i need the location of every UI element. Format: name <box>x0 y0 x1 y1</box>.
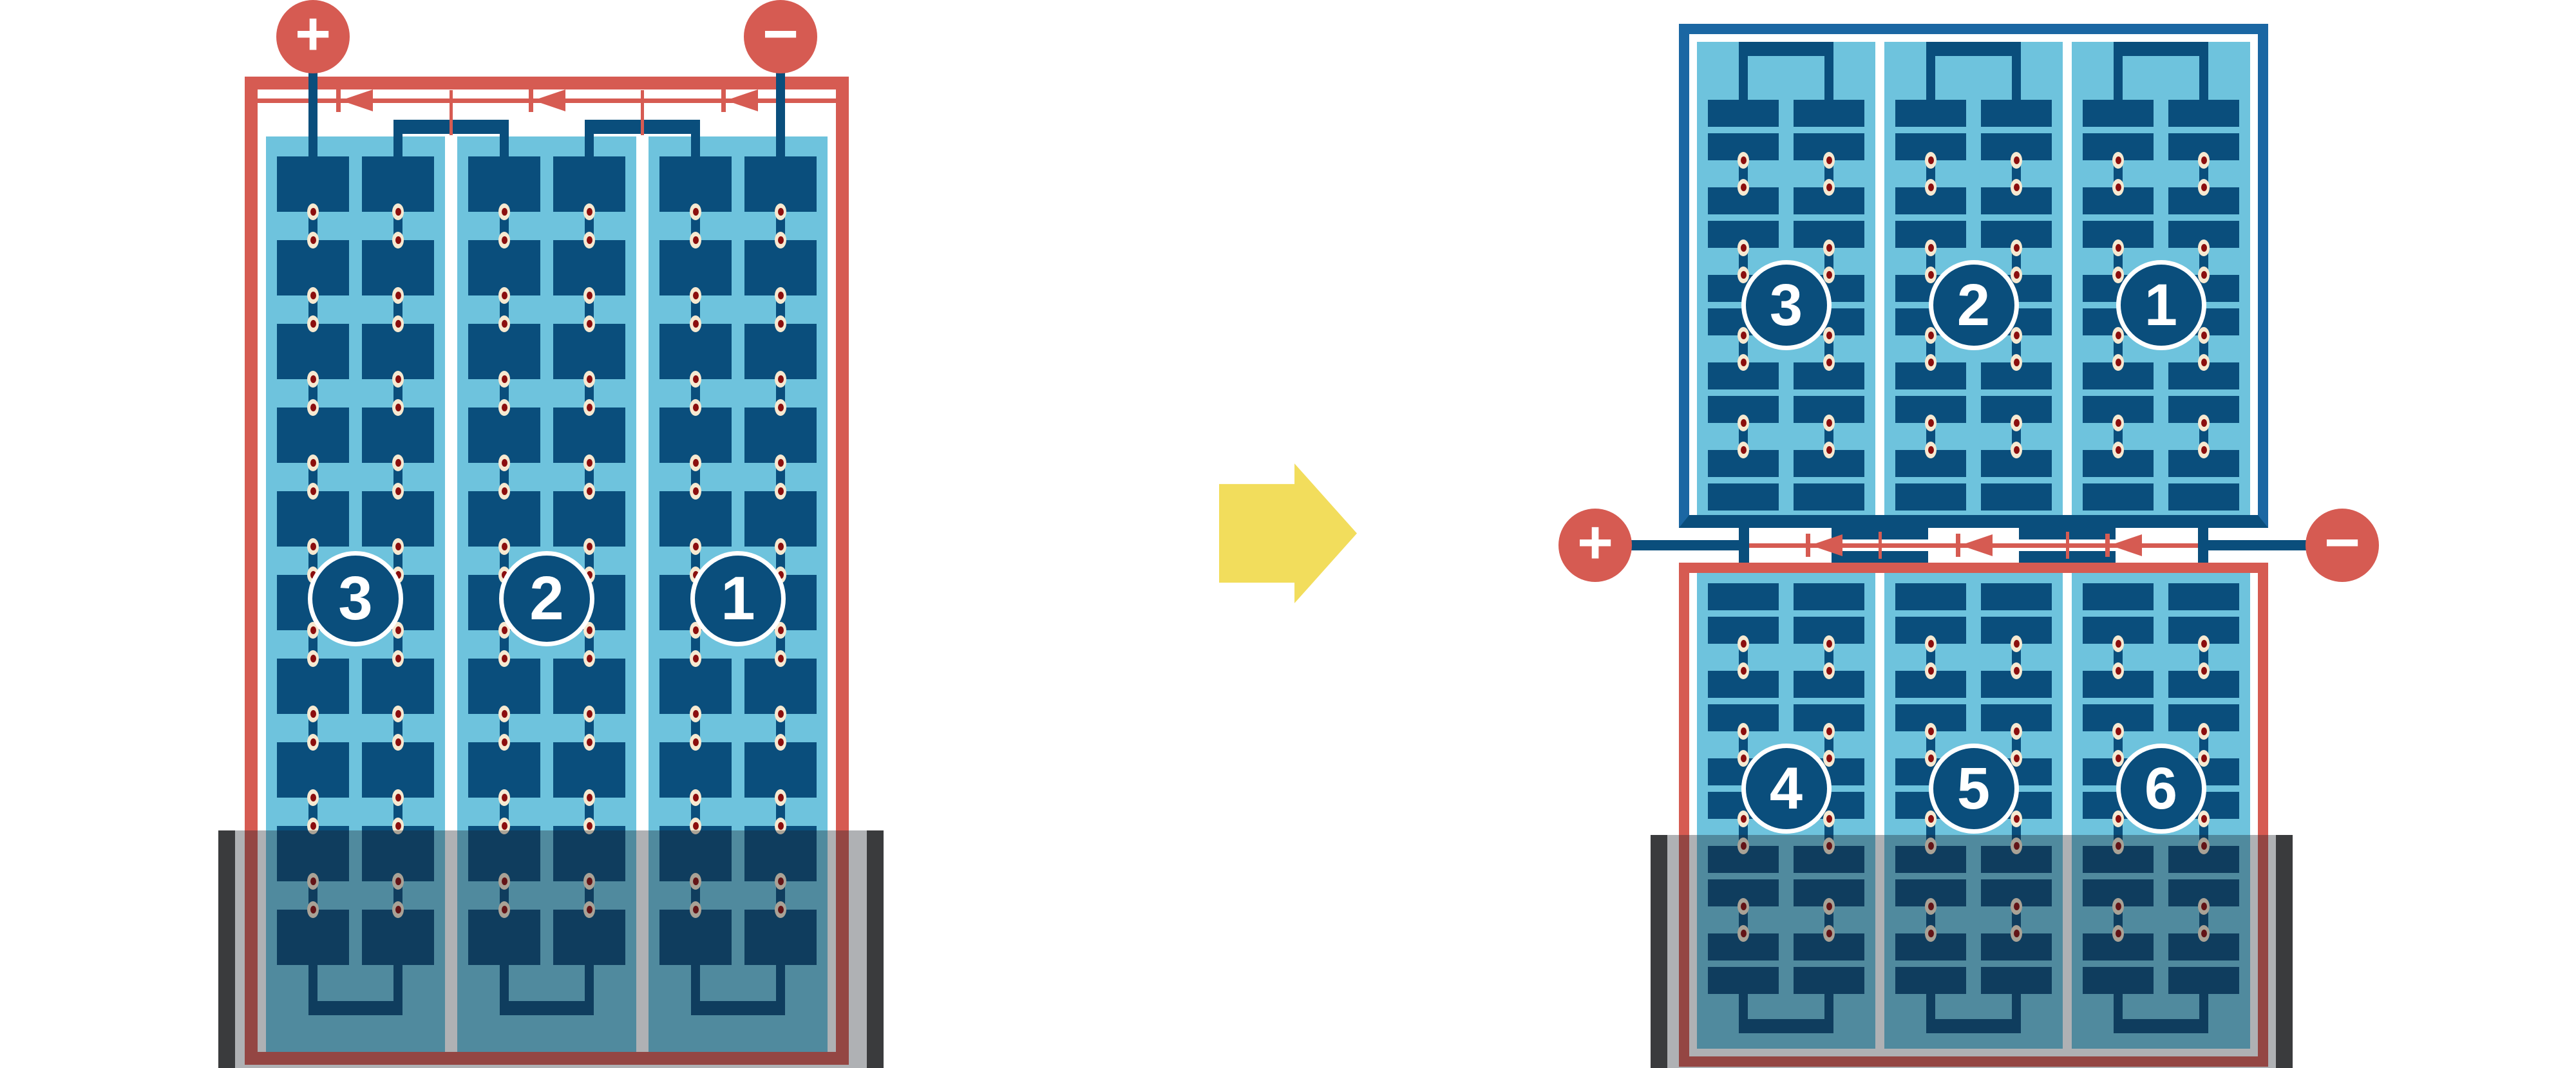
wire-tap-tick <box>1879 532 1882 559</box>
diode-bar-icon <box>2105 534 2110 557</box>
battery-module-diagram: 321321456 + − + − <box>0 0 2576 1068</box>
terminal-stem <box>2208 540 2307 550</box>
right-negative-terminal: − <box>2306 509 2379 582</box>
left-positive-terminal: + <box>276 0 350 73</box>
wire-tap-tick <box>2066 532 2069 559</box>
diode-arrow-icon <box>1960 534 1993 556</box>
diode-bar-icon <box>1806 534 1810 557</box>
minus-icon: − <box>2324 512 2360 574</box>
overlay-end-cap <box>867 830 884 1068</box>
right-submersion-overlay <box>1651 835 2293 1068</box>
junction-connector-bar <box>2198 528 2208 563</box>
plus-icon: + <box>295 3 331 65</box>
diode-bar-icon <box>1956 534 1960 557</box>
diode-arrow-icon <box>1810 534 1842 556</box>
terminal-stem <box>1631 540 1740 550</box>
left-submersion-overlay <box>218 830 884 1068</box>
overlay-end-cap <box>1651 835 1667 1068</box>
junction-connector-bar <box>1739 528 1749 563</box>
terminal-stem <box>776 64 785 156</box>
module-frame <box>1679 24 2268 528</box>
terminal-stem <box>308 64 317 156</box>
overlay-end-cap <box>218 830 235 1068</box>
diode-arrow-icon <box>2110 534 2142 556</box>
right-positive-terminal: + <box>1558 509 1632 582</box>
overlay-end-cap <box>2276 835 2293 1068</box>
plus-icon: + <box>1577 512 1613 574</box>
left-negative-terminal: − <box>744 0 817 73</box>
minus-icon: − <box>762 3 799 65</box>
